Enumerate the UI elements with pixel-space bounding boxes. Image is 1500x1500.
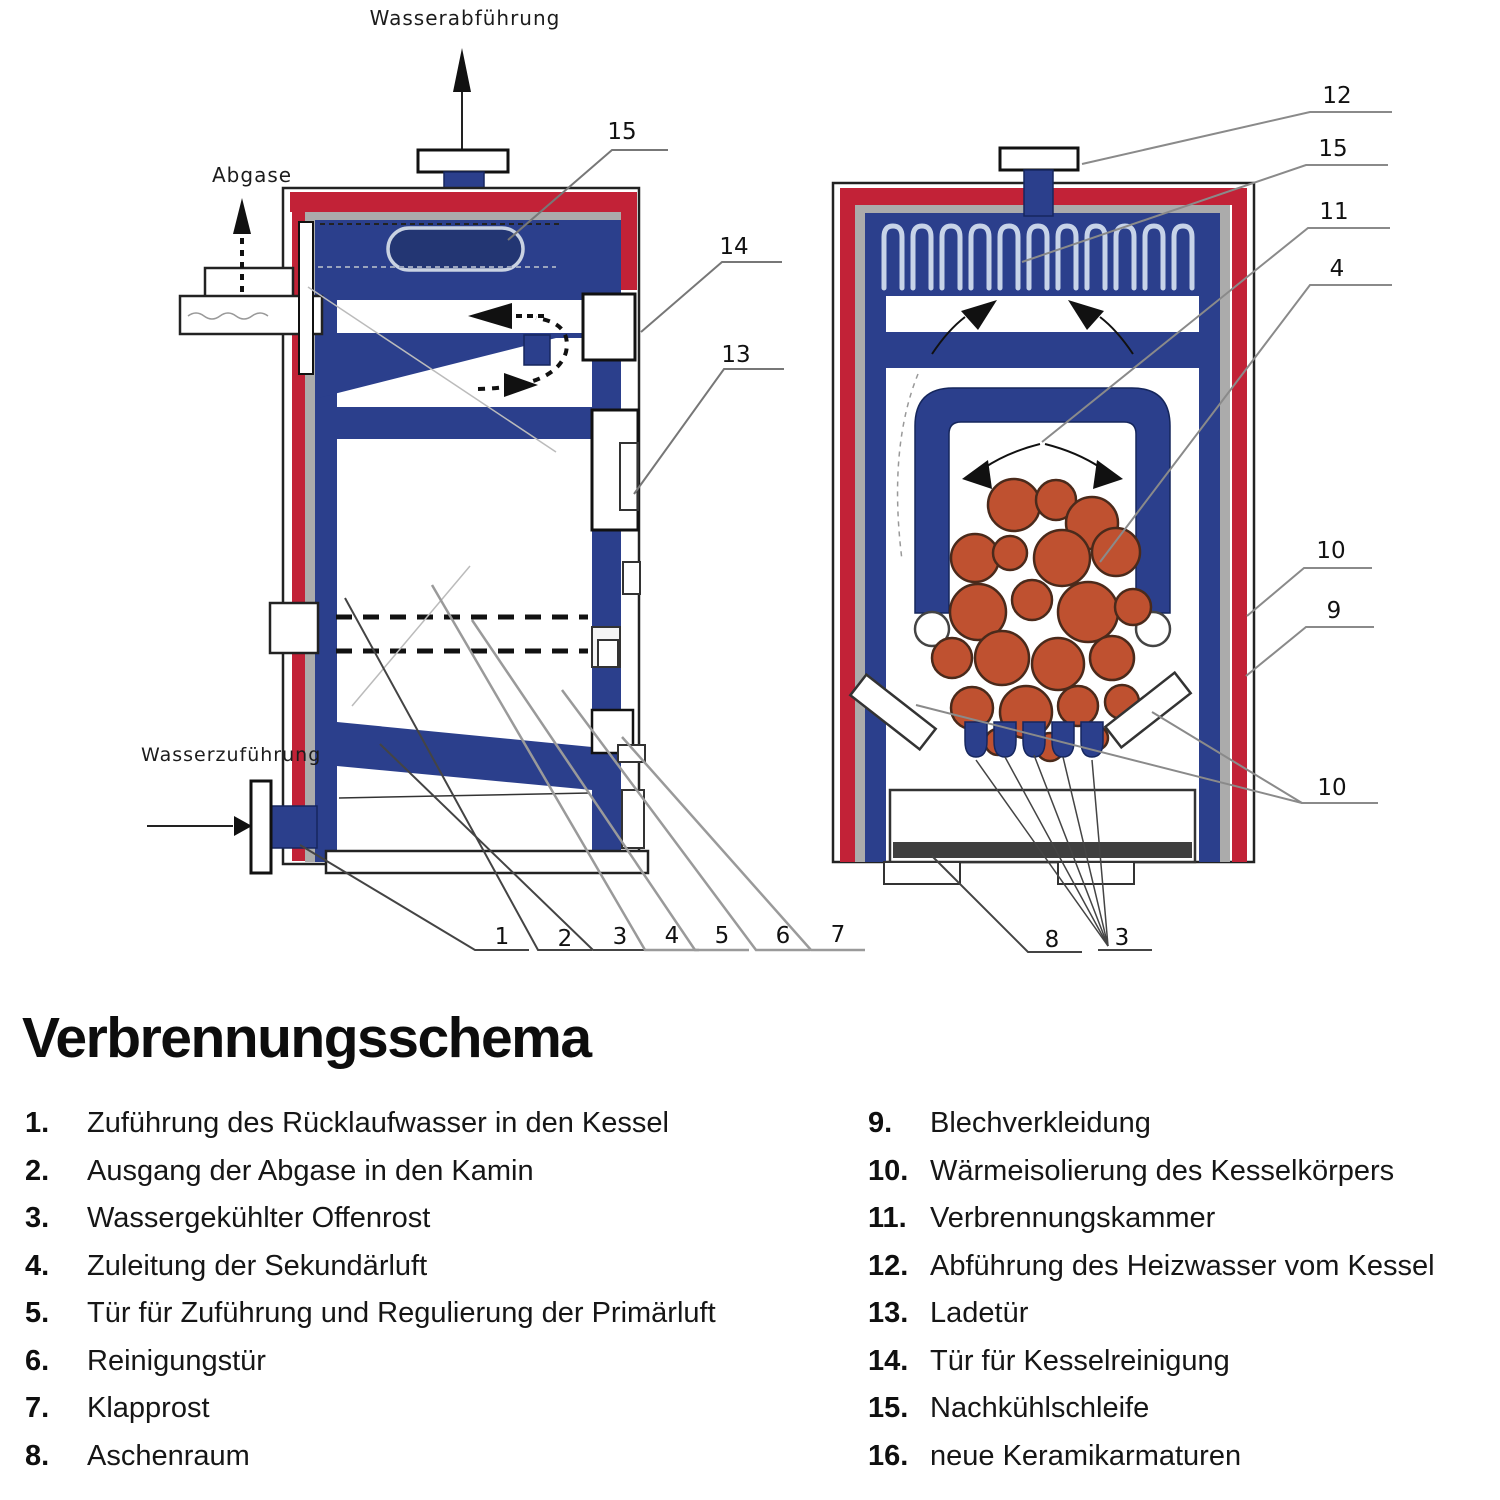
callout-4: 4 <box>665 923 680 949</box>
legend-item: 3.Wassergekühlter Offenrost <box>25 1195 840 1243</box>
callout-8: 8 <box>1045 927 1060 953</box>
legend-number: 15. <box>868 1392 930 1425</box>
legend-number: 8. <box>25 1440 87 1473</box>
boiler-front-section <box>833 148 1254 884</box>
callout-7: 7 <box>831 922 846 948</box>
legend-item: 1.Zuführung des Rücklaufwasser in den Ke… <box>25 1100 840 1148</box>
legend-item: 8.Aschenraum <box>25 1433 840 1481</box>
callout-6: 6 <box>776 923 791 949</box>
callout-3: 3 <box>613 924 628 950</box>
legend-item: 15.Nachkühlschleife <box>868 1385 1493 1433</box>
legend-number: 16. <box>868 1440 930 1473</box>
legend-label: Zuführung des Rücklaufwasser in den Kess… <box>87 1107 669 1140</box>
legend-label: Verbrennungskammer <box>930 1202 1215 1235</box>
callout-11: 11 <box>1319 199 1348 225</box>
legend-number: 9. <box>868 1107 930 1140</box>
callout-15: 15 <box>607 119 636 145</box>
up-arrow-icon <box>453 48 471 92</box>
callout-14: 14 <box>719 234 748 260</box>
exhaust-arrow-icon <box>233 198 251 234</box>
legend-label: Nachkühlschleife <box>930 1392 1149 1425</box>
combustion-scheme-page: Wasserabführung Abgase Wasserzuführung 1… <box>0 0 1500 1500</box>
legend-label: Blechverkleidung <box>930 1107 1151 1140</box>
legend-number: 14. <box>868 1345 930 1378</box>
legend-number: 4. <box>25 1250 87 1283</box>
legend-number: 12. <box>868 1250 930 1283</box>
legend-number: 6. <box>25 1345 87 1378</box>
boiler-diagram-artwork <box>0 0 1500 990</box>
legend-item: 16.neue Keramikarmaturen <box>868 1433 1493 1481</box>
legend-label: Wassergekühlter Offenrost <box>87 1202 430 1235</box>
legend-item: 10.Wärmeisolierung des Kesselkörpers <box>868 1148 1493 1196</box>
callout-13: 13 <box>721 342 750 368</box>
legend-label: Reinigungstür <box>87 1345 266 1378</box>
callout-5: 5 <box>715 923 730 949</box>
legend-item: 6.Reinigungstür <box>25 1338 840 1386</box>
legend-item: 9.Blechverkleidung <box>868 1100 1493 1148</box>
legend-item: 2.Ausgang der Abgase in den Kamin <box>25 1148 840 1196</box>
callout-1: 1 <box>495 924 510 950</box>
legend-number: 13. <box>868 1297 930 1330</box>
exhaust-gas-label: Abgase <box>212 163 292 187</box>
callout-9: 9 <box>1327 598 1342 624</box>
page-title: Verbrennungsschema <box>22 1005 591 1071</box>
legend-item: 14.Tür für Kesselreinigung <box>868 1338 1493 1386</box>
grate-teeth <box>965 722 1103 757</box>
legend-number: 1. <box>25 1107 87 1140</box>
legend-number: 10. <box>868 1155 930 1188</box>
callout-4b: 4 <box>1330 256 1345 282</box>
inlet-arrow-icon <box>234 816 252 836</box>
legend-item: 12.Abführung des Heizwasser vom Kessel <box>868 1243 1493 1291</box>
callout-10b: 10 <box>1317 775 1346 801</box>
legend-number: 11. <box>868 1202 930 1235</box>
legend-label: Aschenraum <box>87 1440 250 1473</box>
legend-label: Wärmeisolierung des Kesselkörpers <box>930 1155 1394 1188</box>
legend-label: Tür für Kesselreinigung <box>930 1345 1230 1378</box>
legend-number: 3. <box>25 1202 87 1235</box>
legend-item: 5.Tür für Zuführung und Regulierung der … <box>25 1290 840 1338</box>
legend-label: Tür für Zuführung und Regulierung der Pr… <box>87 1297 716 1330</box>
water-outlet-label: Wasserabführung <box>352 6 578 30</box>
legend-label: Abführung des Heizwasser vom Kessel <box>930 1250 1435 1283</box>
legend-item: 4.Zuleitung der Sekundärluft <box>25 1243 840 1291</box>
legend-label: Ladetür <box>930 1297 1028 1330</box>
legend-column-right: 9.Blechverkleidung 10.Wärmeisolierung de… <box>868 1100 1493 1480</box>
callout-2: 2 <box>558 926 573 952</box>
water-inlet-label: Wasserzuführung <box>141 744 321 766</box>
legend-number: 7. <box>25 1392 87 1425</box>
legend-item: 13.Ladetür <box>868 1290 1493 1338</box>
legend-item: 7.Klapprost <box>25 1385 840 1433</box>
legend-label: Ausgang der Abgase in den Kamin <box>87 1155 534 1188</box>
callout-12: 12 <box>1322 83 1351 109</box>
legend-column-left: 1.Zuführung des Rücklaufwasser in den Ke… <box>25 1100 840 1480</box>
legend-label: neue Keramikarmaturen <box>930 1440 1241 1473</box>
legend-label: Zuleitung der Sekundärluft <box>87 1250 427 1283</box>
callout-10: 10 <box>1316 538 1345 564</box>
legend-number: 5. <box>25 1297 87 1330</box>
legend-item: 11.Verbrennungskammer <box>868 1195 1493 1243</box>
callout-3b: 3 <box>1115 925 1130 951</box>
legend-label: Klapprost <box>87 1392 210 1425</box>
legend-number: 2. <box>25 1155 87 1188</box>
callout-15b: 15 <box>1318 136 1347 162</box>
